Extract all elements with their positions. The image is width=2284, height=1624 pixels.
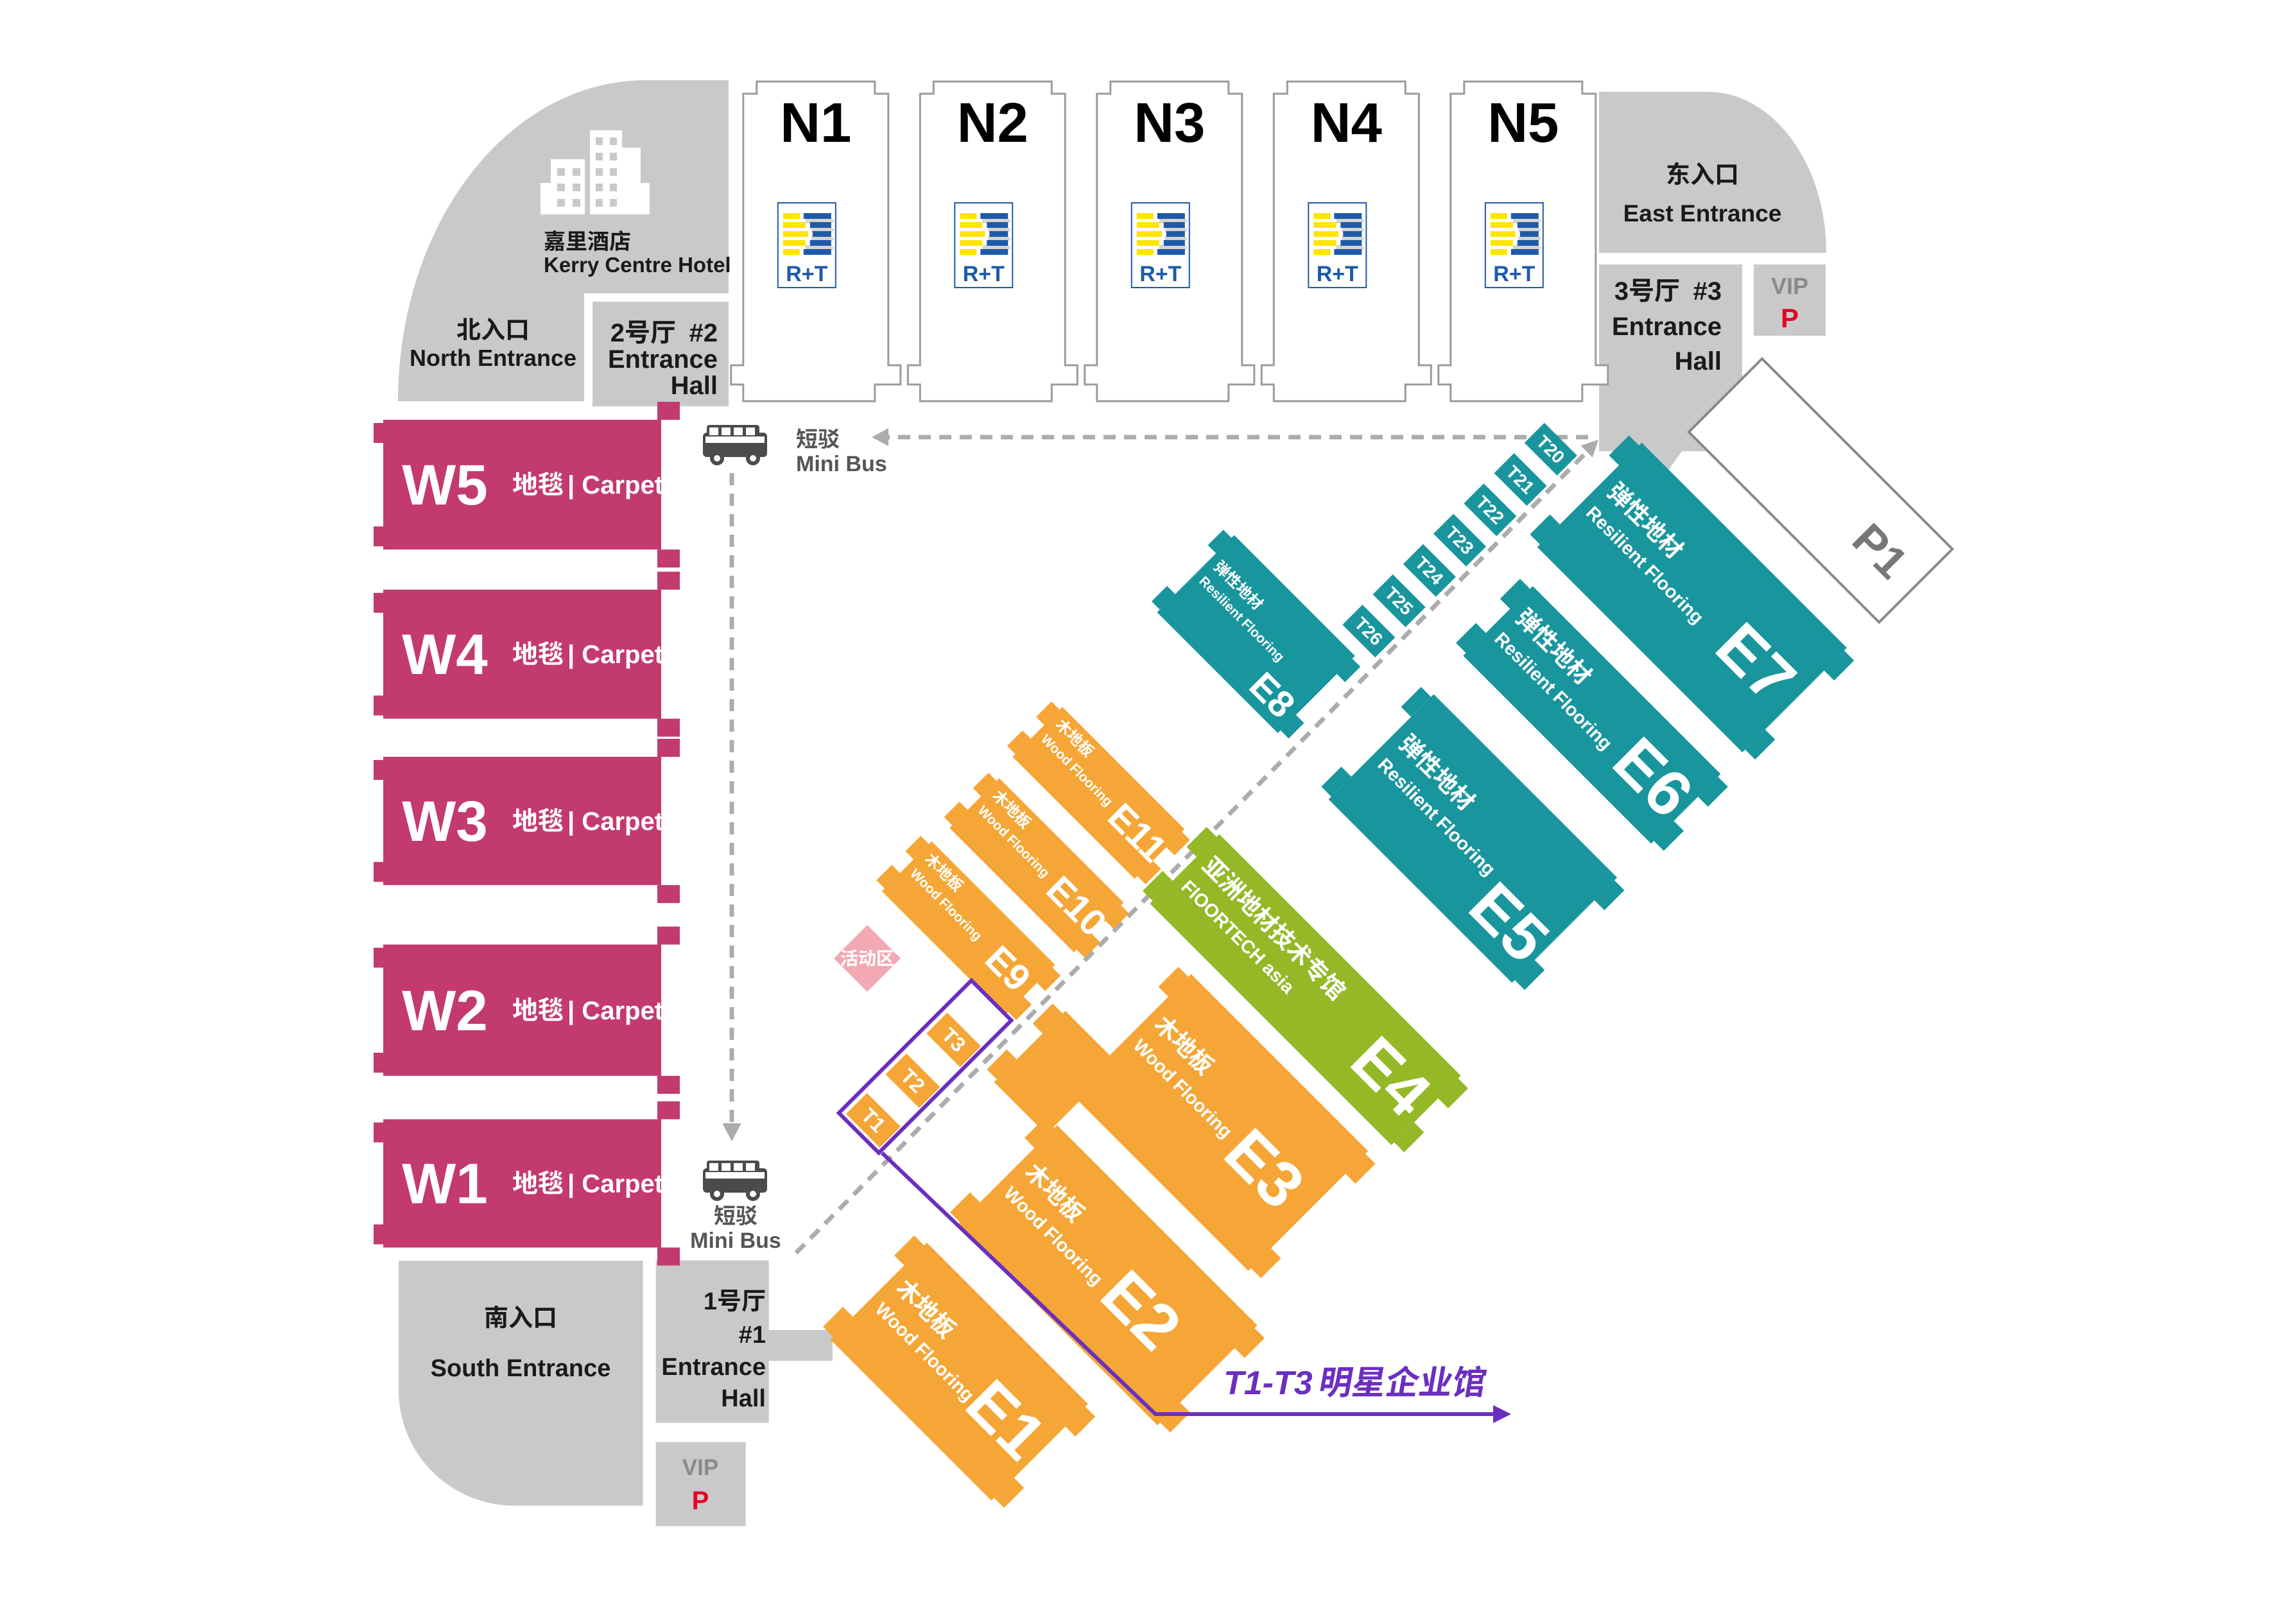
svg-text:Kerry Centre Hotel: Kerry Centre Hotel bbox=[544, 253, 731, 277]
svg-text:| Carpet: | Carpet bbox=[567, 641, 663, 669]
svg-text:#2: #2 bbox=[689, 319, 718, 347]
svg-text:East Entrance: East Entrance bbox=[1623, 200, 1782, 227]
svg-text:Entrance: Entrance bbox=[608, 345, 718, 374]
svg-text:N4: N4 bbox=[1311, 92, 1382, 154]
svg-text:W2: W2 bbox=[402, 978, 488, 1042]
svg-text:W1: W1 bbox=[402, 1152, 488, 1216]
svg-text:P: P bbox=[1781, 303, 1799, 333]
svg-text:R+T: R+T bbox=[963, 262, 1005, 286]
svg-text:3: 3 bbox=[1614, 277, 1629, 306]
svg-text:| Carpet: | Carpet bbox=[567, 1170, 663, 1198]
svg-text:R+T: R+T bbox=[1493, 262, 1535, 286]
svg-text:#1: #1 bbox=[739, 1322, 766, 1349]
svg-text:Mini Bus: Mini Bus bbox=[690, 1229, 781, 1253]
svg-text:| Carpet: | Carpet bbox=[567, 997, 663, 1025]
svg-text:W5: W5 bbox=[402, 453, 488, 517]
svg-text:R+T: R+T bbox=[1317, 262, 1358, 286]
svg-text:N5: N5 bbox=[1487, 92, 1559, 154]
svg-text:R+T: R+T bbox=[1139, 262, 1181, 286]
svg-text:Hall: Hall bbox=[1675, 347, 1722, 376]
svg-text:W4: W4 bbox=[402, 622, 488, 686]
svg-text:VIP: VIP bbox=[1771, 273, 1808, 299]
svg-text:W3: W3 bbox=[402, 789, 488, 853]
svg-text:P: P bbox=[692, 1487, 709, 1515]
svg-text:Entrance: Entrance bbox=[661, 1354, 766, 1381]
svg-text:N2: N2 bbox=[957, 92, 1028, 154]
svg-text:North Entrance: North Entrance bbox=[410, 345, 576, 371]
svg-text:South Entrance: South Entrance bbox=[431, 1355, 611, 1382]
svg-text:VIP: VIP bbox=[682, 1455, 718, 1480]
svg-text:| Carpet: | Carpet bbox=[567, 471, 663, 499]
svg-text:Hall: Hall bbox=[721, 1385, 766, 1412]
svg-text:Mini Bus: Mini Bus bbox=[796, 452, 887, 476]
svg-text:1: 1 bbox=[704, 1288, 717, 1315]
svg-text:2: 2 bbox=[610, 319, 625, 347]
svg-text:T1-T3: T1-T3 bbox=[1224, 1365, 1313, 1402]
svg-text:Hall: Hall bbox=[671, 372, 718, 400]
svg-text:N3: N3 bbox=[1134, 92, 1205, 154]
svg-text:Entrance: Entrance bbox=[1612, 313, 1722, 341]
svg-text:| Carpet: | Carpet bbox=[567, 808, 663, 836]
svg-text:R+T: R+T bbox=[786, 262, 827, 286]
svg-text:#3: #3 bbox=[1693, 277, 1722, 306]
svg-text:N1: N1 bbox=[780, 92, 851, 154]
